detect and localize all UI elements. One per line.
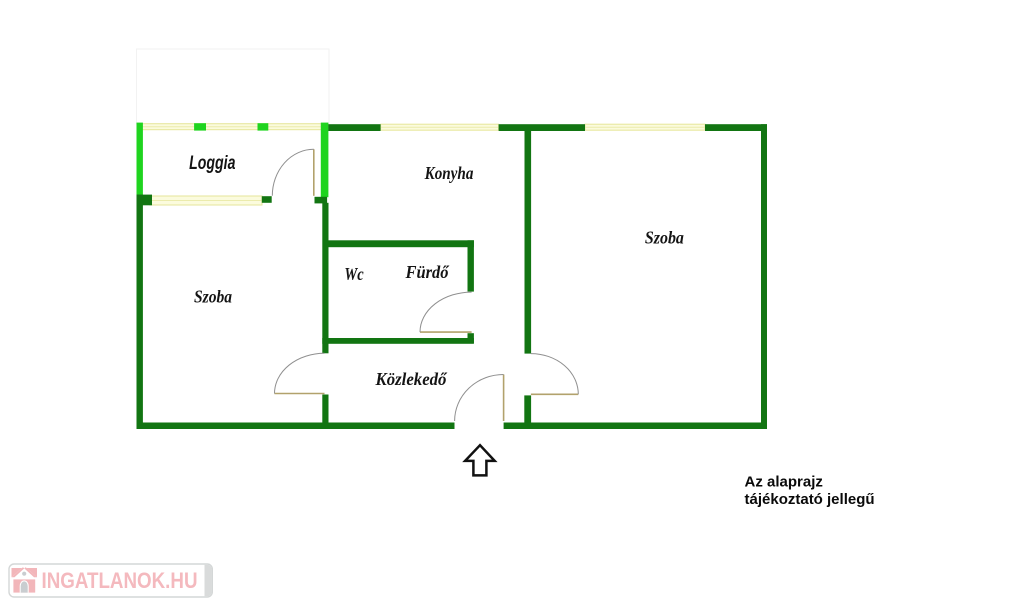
svg-text:Fürdő: Fürdő bbox=[405, 262, 450, 282]
svg-text:Szoba: Szoba bbox=[645, 228, 684, 248]
svg-text:Közlekedő: Közlekedő bbox=[375, 369, 448, 389]
svg-text:Wc: Wc bbox=[344, 264, 363, 284]
svg-text:Az alaprajz: Az alaprajz bbox=[745, 474, 823, 491]
svg-text:tájékoztató jellegű: tájékoztató jellegű bbox=[745, 491, 875, 508]
svg-text:Konyha: Konyha bbox=[424, 163, 474, 183]
svg-text:Szoba: Szoba bbox=[194, 287, 232, 307]
svg-text:Loggia: Loggia bbox=[189, 153, 236, 174]
svg-text:INGATLANOK.HU: INGATLANOK.HU bbox=[42, 568, 198, 593]
